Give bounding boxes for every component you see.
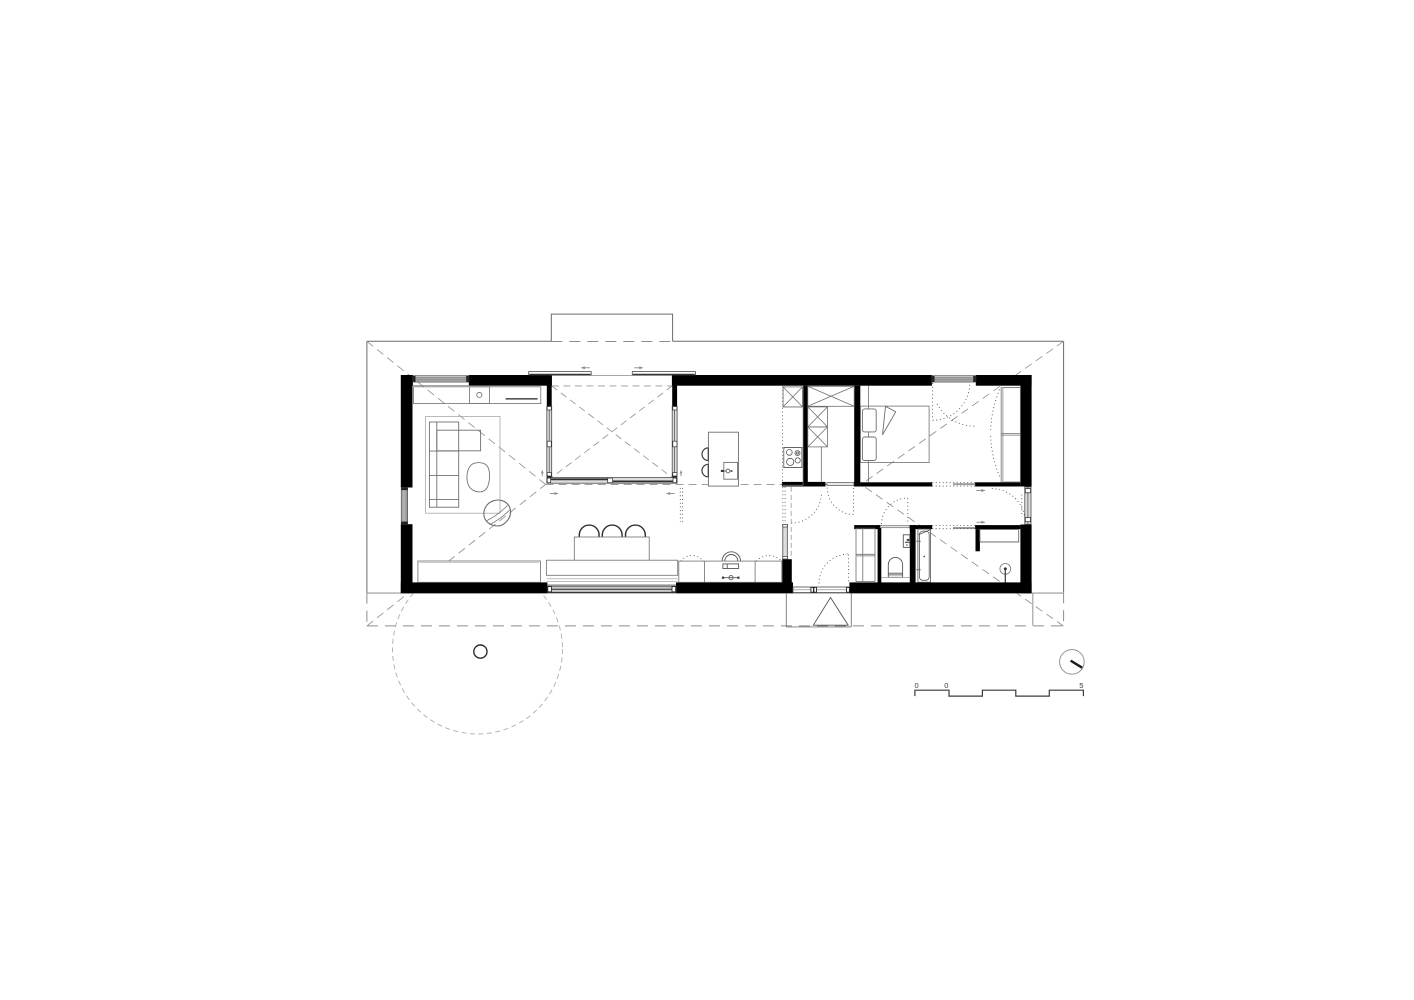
svg-text:0: 0	[915, 681, 919, 690]
svg-text:0: 0	[944, 681, 948, 690]
svg-text:5: 5	[1079, 681, 1083, 690]
